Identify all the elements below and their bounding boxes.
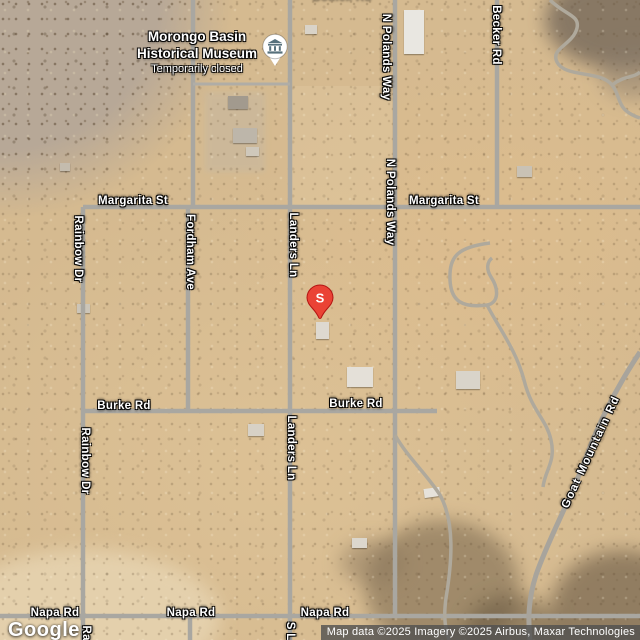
road-goat-mountain-rd <box>529 352 640 640</box>
building <box>228 96 248 109</box>
trail-south-diagonal <box>395 435 451 640</box>
road-label-margarita-east: Margarita St <box>409 195 479 207</box>
museum-pin[interactable] <box>261 33 289 72</box>
marker-pin-icon: S <box>306 284 334 320</box>
road-label-napa-east: Napa Rd <box>301 607 350 619</box>
road-label-clipped-top: Bodick Rd <box>312 0 372 2</box>
building <box>246 147 259 156</box>
building <box>77 304 90 313</box>
map-attribution: Map data ©2025 Imagery ©2025 Airbus, Max… <box>321 625 640 640</box>
road-label-landers-upper: Landers Ln <box>287 213 299 278</box>
building <box>456 371 480 389</box>
terrain-museum-lot <box>205 92 265 172</box>
road-label-becker: Becker Rd <box>490 5 502 65</box>
map-canvas[interactable]: Bodick Rd Margarita St Margarita St Rain… <box>0 0 640 640</box>
building <box>517 166 532 177</box>
trail-loop <box>450 243 497 306</box>
trail-northeast-fork <box>612 72 640 85</box>
road-label-npolands-upper: N Polands Way <box>380 14 392 101</box>
terrain-dark-south-4 <box>340 540 405 585</box>
poi-morongo-basin-historical-museum[interactable]: Morongo Basin Historical Museum Temporar… <box>137 28 257 77</box>
road-label-landers-clipped: S Landers Ln <box>284 622 296 640</box>
road-label-margarita-west: Margarita St <box>98 195 168 207</box>
building <box>347 367 373 387</box>
terrain-dark-northeast-2 <box>600 45 640 100</box>
map-marker-s[interactable]: S <box>306 284 334 325</box>
road-label-rainbow-upper: Rainbow Dr <box>72 216 84 283</box>
road-label-rainbow-lower: Rainbow Dr <box>79 428 91 495</box>
road-label-napa-center: Napa Rd <box>167 607 216 619</box>
terrain-parcel-tint <box>292 86 392 206</box>
google-logo[interactable]: Google <box>8 619 80 640</box>
building <box>248 424 264 436</box>
trail-northeast-squiggle <box>550 0 640 118</box>
road-label-npolands-lower: N Polands Way <box>384 159 396 246</box>
road-label-burke-west: Burke Rd <box>97 400 151 412</box>
museum-icon <box>261 33 289 67</box>
road-label-landers-lower: Landers Ln <box>285 416 297 481</box>
poi-name-line1: Morongo Basin <box>137 28 257 45</box>
building <box>423 487 440 498</box>
poi-name-line2: Historical Museum <box>137 45 257 62</box>
marker-label: S <box>316 291 325 306</box>
building <box>352 538 367 548</box>
building <box>404 10 424 54</box>
building <box>305 25 317 34</box>
building <box>233 128 257 143</box>
poi-status: Temporarily closed <box>137 62 257 77</box>
road-label-goat-mountain: Goat Mountain Rd <box>560 394 623 511</box>
building <box>60 163 70 171</box>
terrain-dark-northeast <box>545 0 640 70</box>
road-label-napa-west: Napa Rd <box>31 607 80 619</box>
road-label-fordham: Fordham Ave <box>184 214 196 290</box>
trail-loop-tail <box>487 305 552 487</box>
terrain-dark-south-1 <box>365 520 520 640</box>
road-label-burke-east: Burke Rd <box>329 398 383 410</box>
road-label-rainbow-clipped: Rainbow Dr <box>80 626 92 640</box>
